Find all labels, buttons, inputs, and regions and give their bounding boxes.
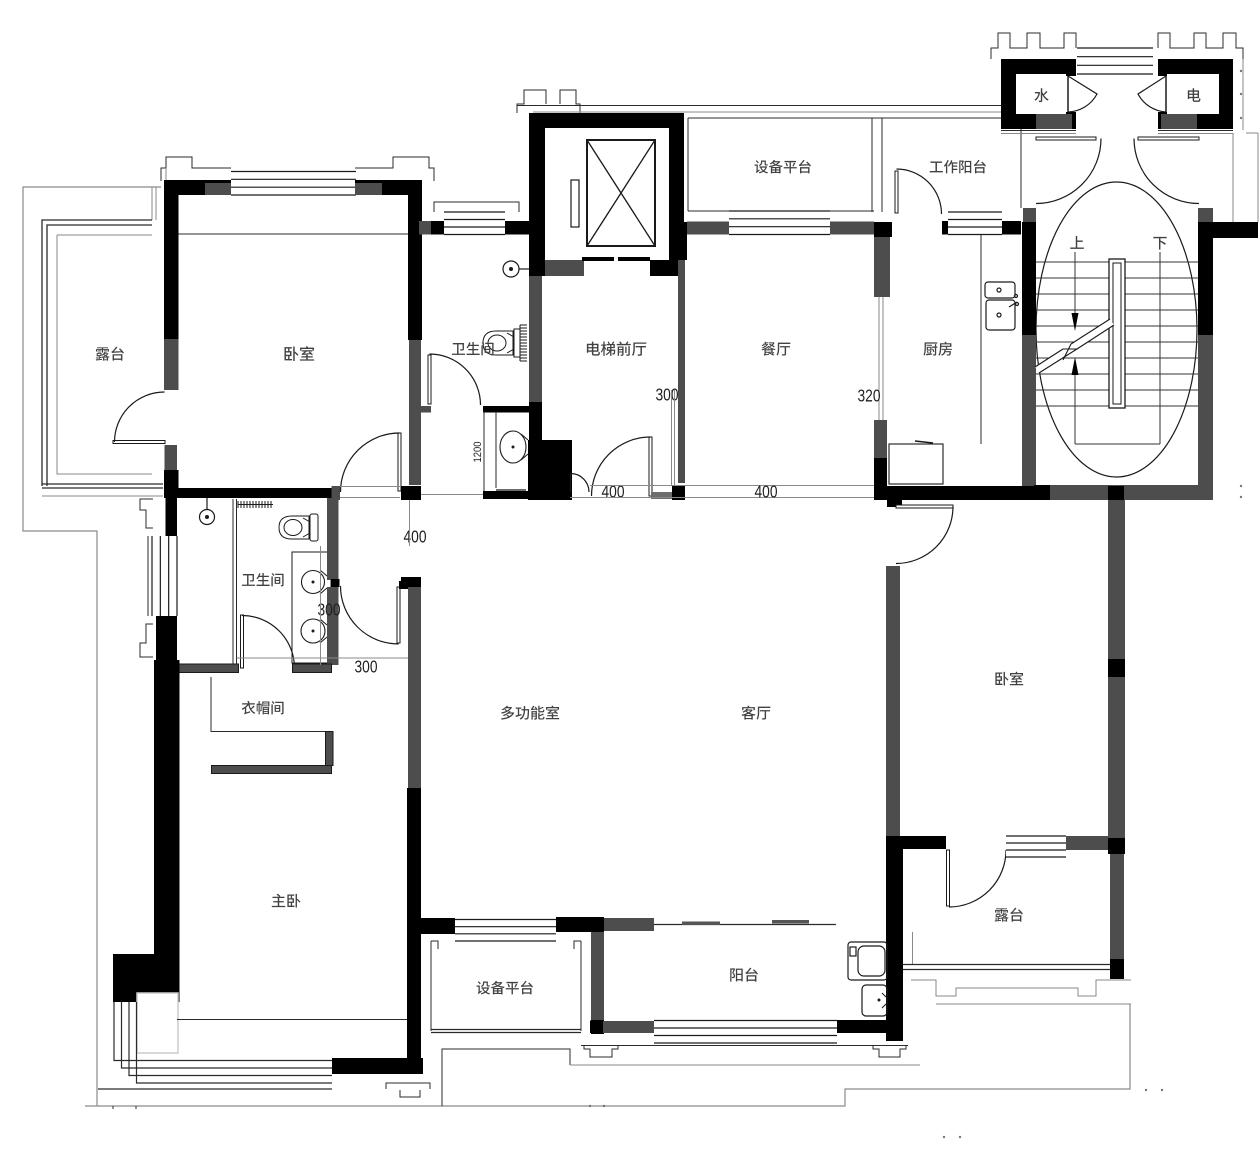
svg-text:300: 300 <box>355 656 378 676</box>
svg-text:300: 300 <box>656 384 679 404</box>
svg-text:1200: 1200 <box>472 442 484 463</box>
svg-text:400: 400 <box>404 526 427 546</box>
svg-text:400: 400 <box>755 481 778 501</box>
svg-text:320: 320 <box>858 385 881 405</box>
svg-text:400: 400 <box>602 481 625 501</box>
